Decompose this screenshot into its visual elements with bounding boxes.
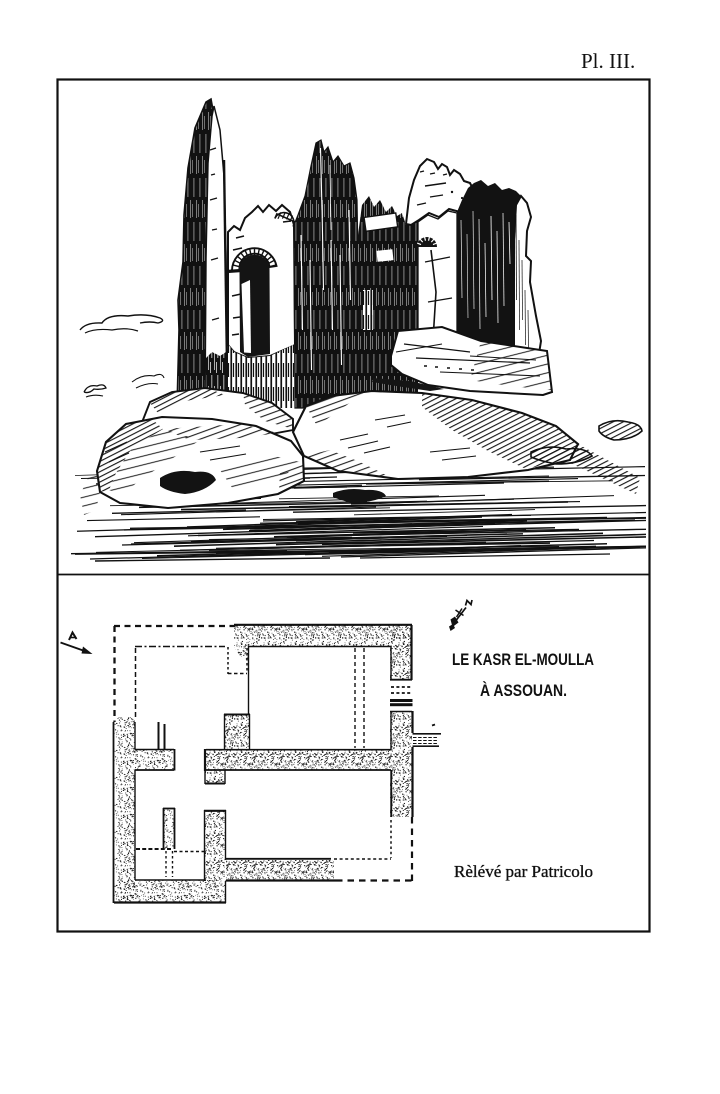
svg-text:LE KASR EL-MOULLA: LE KASR EL-MOULLA [452, 651, 594, 669]
svg-text:Pl. III.: Pl. III. [581, 49, 635, 73]
svg-text:Rèlévé par Patricolo: Rèlévé par Patricolo [454, 862, 593, 881]
svg-text:À ASSOUAN.: À ASSOUAN. [480, 681, 567, 700]
